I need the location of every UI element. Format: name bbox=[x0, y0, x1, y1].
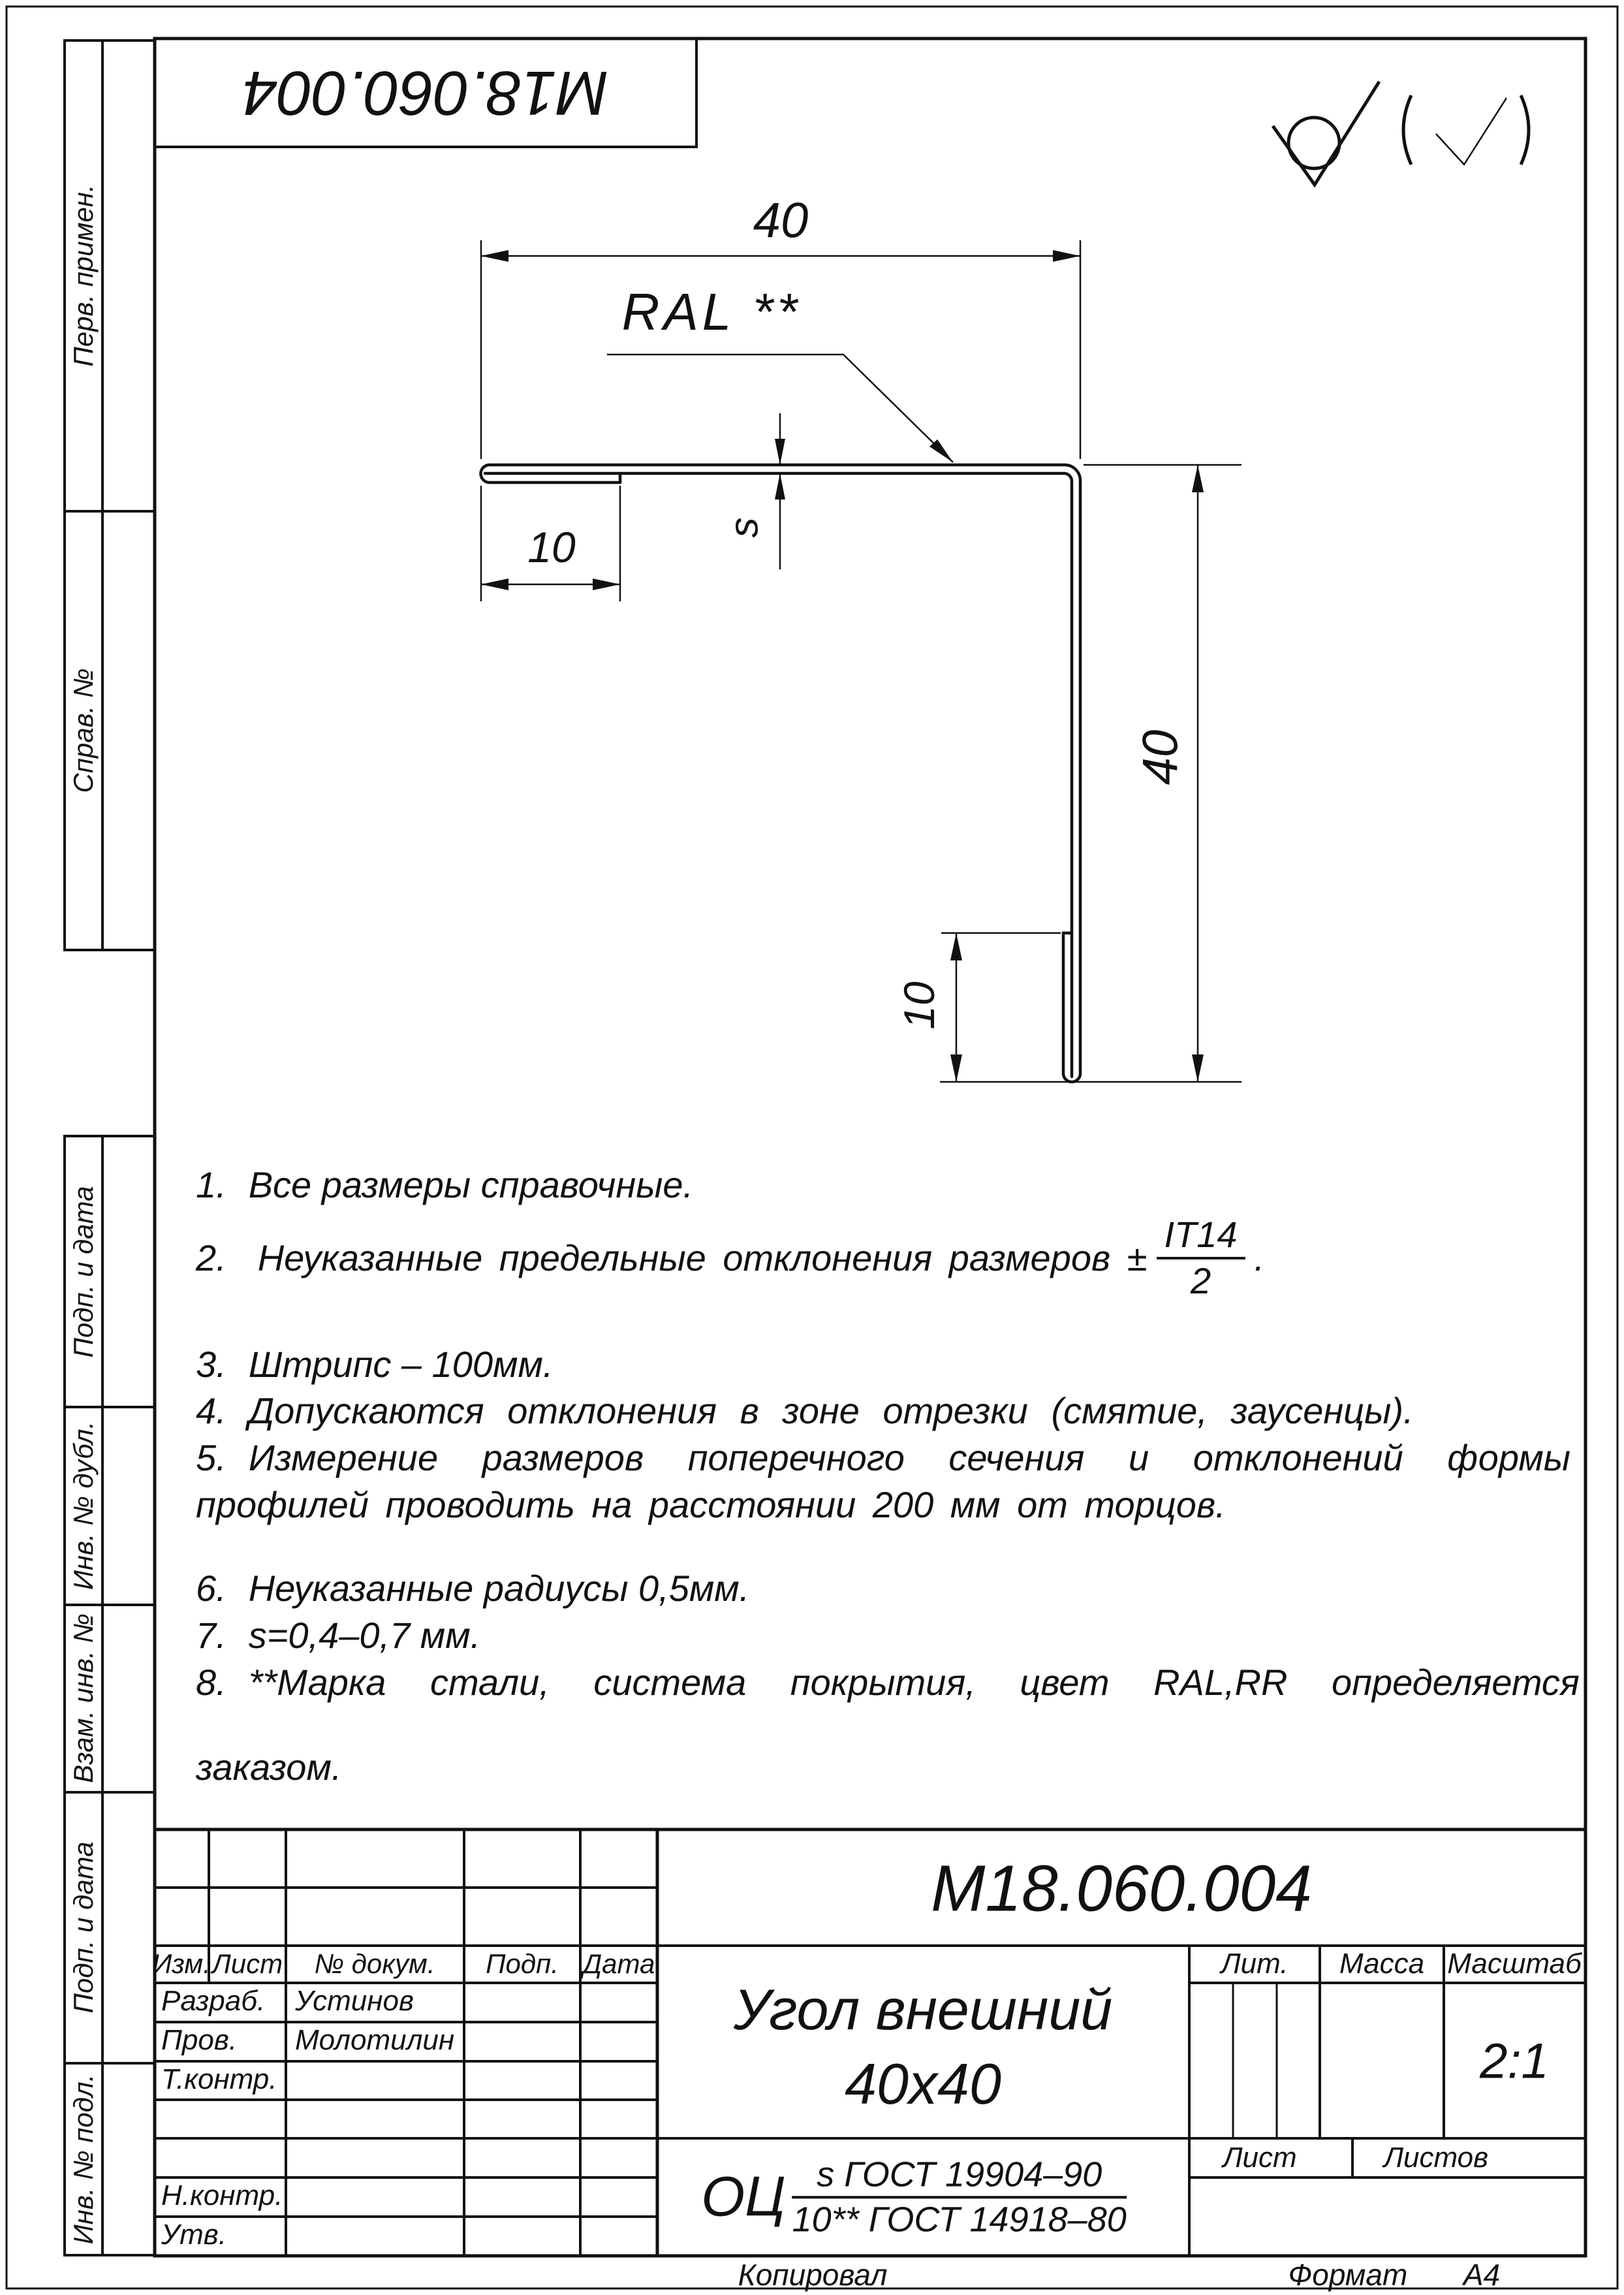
note-5-line2: профилей проводить на расстоянии 200 мм … bbox=[196, 1483, 1226, 1526]
note-3-text: Штрипс – 100мм. bbox=[249, 1344, 554, 1385]
title-designation: М18.060.004 bbox=[931, 1852, 1312, 1927]
main-frame bbox=[155, 39, 1585, 2256]
note-8-line1: 8.**Марка стали, система покрытия, цвет … bbox=[196, 1661, 1580, 1703]
note-2-frac-num: IT14 bbox=[1157, 1216, 1245, 1259]
note-6: 6.Неуказанные радиусы 0,5мм. bbox=[196, 1567, 749, 1609]
part-name-line1: Угол внешний bbox=[734, 1976, 1112, 2043]
note-7-text: s=0,4–0,7 мм. bbox=[249, 1615, 480, 1656]
dim-hem-top-10: 10 bbox=[527, 522, 575, 572]
note-6-num: 6. bbox=[196, 1567, 226, 1609]
ral-leader-label: RAL ** bbox=[622, 282, 802, 342]
row-tkontr-label: Т.контр. bbox=[161, 2063, 277, 2096]
note-8-num: 8. bbox=[196, 1661, 226, 1703]
note-2-text: Неуказанные предельные отклонения размер… bbox=[258, 1237, 1148, 1279]
dim-right-40: 40 bbox=[1132, 730, 1189, 785]
sheets-label: Листов bbox=[1384, 2142, 1488, 2174]
note-7: 7.s=0,4–0,7 мм. bbox=[196, 1614, 480, 1656]
code-stamp-text: М18.060.004 bbox=[243, 57, 608, 129]
note-2: 2. Неуказанные предельные отклонения раз… bbox=[196, 1216, 1264, 1301]
margin-label-inv-dubl: Инв. № дубл. bbox=[68, 1421, 99, 1590]
note-4-text: Допускаются отклонения в зоне отрезки (с… bbox=[249, 1390, 1414, 1431]
note-5-text1: Измерение размеров поперечного сечения и… bbox=[249, 1437, 1570, 1478]
sheet-label: Лист bbox=[1223, 2142, 1296, 2174]
margin-label-vzam-inv: Взам. инв. № bbox=[68, 1613, 99, 1783]
dimension-lines bbox=[481, 240, 1241, 1082]
margin-label-perv-primen: Перв. примен. bbox=[68, 184, 99, 366]
material-gost-sheet: s ГОСТ 19904–90 bbox=[792, 2156, 1127, 2198]
row-prov-name: Молотилин bbox=[295, 2024, 454, 2057]
note-1: 1.Все размеры справочные. bbox=[196, 1163, 693, 1206]
note-2-frac-den: 2 bbox=[1157, 1259, 1245, 1301]
note-1-text: Все размеры справочные. bbox=[249, 1164, 693, 1205]
header-doc: № докум. bbox=[314, 1948, 435, 1980]
note-5-num: 5. bbox=[196, 1436, 226, 1479]
dim-hem-bottom-10: 10 bbox=[894, 981, 944, 1029]
material-prefix: ОЦ bbox=[701, 2165, 785, 2230]
part-name-line2: 40х40 bbox=[845, 2051, 1001, 2117]
surface-finish-bracket-icon bbox=[1403, 95, 1529, 165]
drawing-sheet: М18.060.004 Перв. примен. Справ. № Подп.… bbox=[0, 0, 1624, 2295]
material-cell: ОЦ s ГОСТ 19904–90 10** ГОСТ 14918–80 bbox=[701, 2156, 1127, 2238]
dimension-arrowheads bbox=[481, 250, 1204, 1082]
material-gost-coating: 10** ГОСТ 14918–80 bbox=[792, 2198, 1127, 2238]
dim-top-40: 40 bbox=[753, 193, 809, 249]
note-6-text: Неуказанные радиусы 0,5мм. bbox=[249, 1568, 750, 1609]
dim-thickness-s: s bbox=[721, 518, 768, 538]
row-nkontr-label: Н.контр. bbox=[161, 2179, 283, 2212]
surface-finish-icon bbox=[1273, 82, 1379, 185]
scale-value: 2:1 bbox=[1480, 2033, 1549, 2090]
note-2-num: 2. bbox=[196, 1237, 226, 1279]
format-label: Формат bbox=[1288, 2257, 1408, 2292]
margin-label-podp-data-2: Подп. и дата bbox=[68, 1842, 99, 2014]
note-5-text2: профилей проводить на расстоянии 200 мм … bbox=[196, 1484, 1226, 1525]
copied-label: Копировал bbox=[738, 2257, 888, 2292]
scale-label: Масштаб bbox=[1447, 1948, 1582, 1980]
header-izm: Изм. bbox=[152, 1948, 211, 1980]
note-8-text2: заказом. bbox=[196, 1747, 341, 1788]
note-4: 4.Допускаются отклонения в зоне отрезки … bbox=[196, 1389, 1414, 1432]
format-value: А4 bbox=[1463, 2257, 1500, 2292]
note-3-num: 3. bbox=[196, 1343, 226, 1385]
row-utv-label: Утв. bbox=[161, 2219, 226, 2251]
lit-label: Лит. bbox=[1221, 1948, 1288, 1980]
margin-label-sprav-no: Справ. № bbox=[68, 669, 99, 793]
margin-label-inv-podl: Инв. № подл. bbox=[68, 2074, 99, 2245]
header-podp: Подп. bbox=[486, 1948, 559, 1980]
header-data: Дата bbox=[583, 1948, 655, 1980]
note-1-num: 1. bbox=[196, 1163, 226, 1206]
row-razrab-name: Устинов bbox=[295, 1985, 414, 2018]
note-4-num: 4. bbox=[196, 1389, 226, 1432]
mass-label: Масса bbox=[1339, 1948, 1424, 1980]
note-8-text1: **Марка стали, система покрытия, цвет RA… bbox=[249, 1662, 1580, 1703]
row-prov-label: Пров. bbox=[161, 2024, 237, 2057]
note-2-fraction: IT14 2 bbox=[1157, 1216, 1245, 1301]
note-2-period: . bbox=[1255, 1237, 1265, 1279]
row-razrab-label: Разраб. bbox=[161, 1985, 265, 2018]
note-7-num: 7. bbox=[196, 1614, 226, 1656]
note-8-line2: заказом. bbox=[196, 1746, 341, 1788]
margin-label-podp-data-1: Подп. и дата bbox=[68, 1186, 99, 1358]
note-3: 3.Штрипс – 100мм. bbox=[196, 1343, 553, 1385]
header-list: Лист bbox=[212, 1948, 283, 1980]
note-5-line1: 5.Измерение размеров поперечного сечения… bbox=[196, 1436, 1570, 1479]
